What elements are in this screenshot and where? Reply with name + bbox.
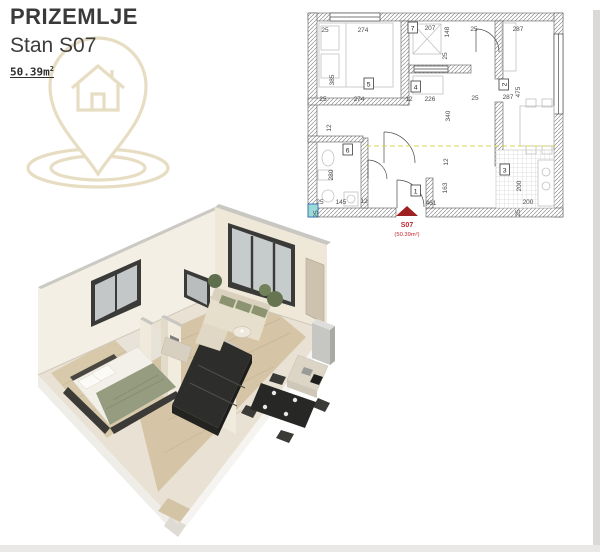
svg-text:12: 12 [443, 158, 450, 166]
svg-text:274: 274 [358, 27, 369, 34]
svg-text:6: 6 [346, 148, 350, 155]
svg-text:2: 2 [502, 82, 509, 86]
page-edge-right [593, 10, 600, 552]
header: PRIZEMLJE Stan S07 50.39m2 [10, 4, 138, 81]
room-number-2: 2 [499, 79, 509, 90]
svg-text:287: 287 [513, 26, 524, 33]
svg-text:12: 12 [360, 198, 368, 205]
room-number-4: 4 [411, 81, 421, 92]
room-number-3: 3 [500, 164, 510, 175]
svg-text:200: 200 [516, 180, 523, 191]
svg-text:274: 274 [354, 96, 365, 103]
svg-text:25: 25 [321, 27, 329, 34]
svg-text:200: 200 [523, 199, 534, 206]
floor-plan-3d [18, 195, 358, 540]
unit-subtitle: Stan S07 [10, 34, 138, 58]
svg-text:(50.39m²): (50.39m²) [394, 232, 419, 238]
svg-text:7: 7 [411, 26, 415, 33]
svg-text:25: 25 [442, 52, 449, 60]
svg-text:280: 280 [328, 169, 335, 180]
room-number-1: 1 [411, 185, 421, 196]
svg-text:25: 25 [470, 26, 478, 33]
room-number-6: 6 [343, 144, 353, 155]
svg-text:12: 12 [326, 124, 333, 132]
svg-text:3: 3 [503, 168, 507, 175]
svg-text:5: 5 [367, 82, 371, 89]
unit-area: 50.39m2 [10, 65, 54, 79]
svg-text:S07: S07 [401, 222, 414, 229]
svg-text:287: 287 [503, 94, 514, 101]
svg-text:385: 385 [329, 74, 336, 85]
room-number-7: 7 [408, 22, 418, 33]
svg-text:25: 25 [515, 209, 522, 217]
entry-door-panel [306, 258, 324, 323]
svg-text:12: 12 [405, 96, 413, 103]
svg-text:25: 25 [471, 95, 479, 102]
svg-text:475: 475 [515, 86, 522, 97]
svg-text:226: 226 [425, 96, 436, 103]
svg-text:461: 461 [426, 200, 437, 207]
plant-icon [208, 274, 222, 288]
svg-text:25: 25 [319, 96, 327, 103]
svg-text:4: 4 [414, 85, 418, 92]
page-title: PRIZEMLJE [10, 4, 138, 30]
svg-text:163: 163 [442, 182, 449, 193]
coffee-table [233, 327, 251, 338]
fridge [312, 319, 335, 365]
svg-text:340: 340 [445, 110, 452, 121]
listing-page: PRIZEMLJE Stan S07 50.39m2 [0, 0, 600, 552]
room-number-5: 5 [364, 78, 374, 89]
svg-text:207: 207 [425, 25, 436, 32]
page-edge-bottom [0, 545, 600, 552]
svg-text:1: 1 [414, 189, 418, 196]
plant-icon [267, 291, 283, 307]
svg-text:148: 148 [444, 26, 451, 37]
